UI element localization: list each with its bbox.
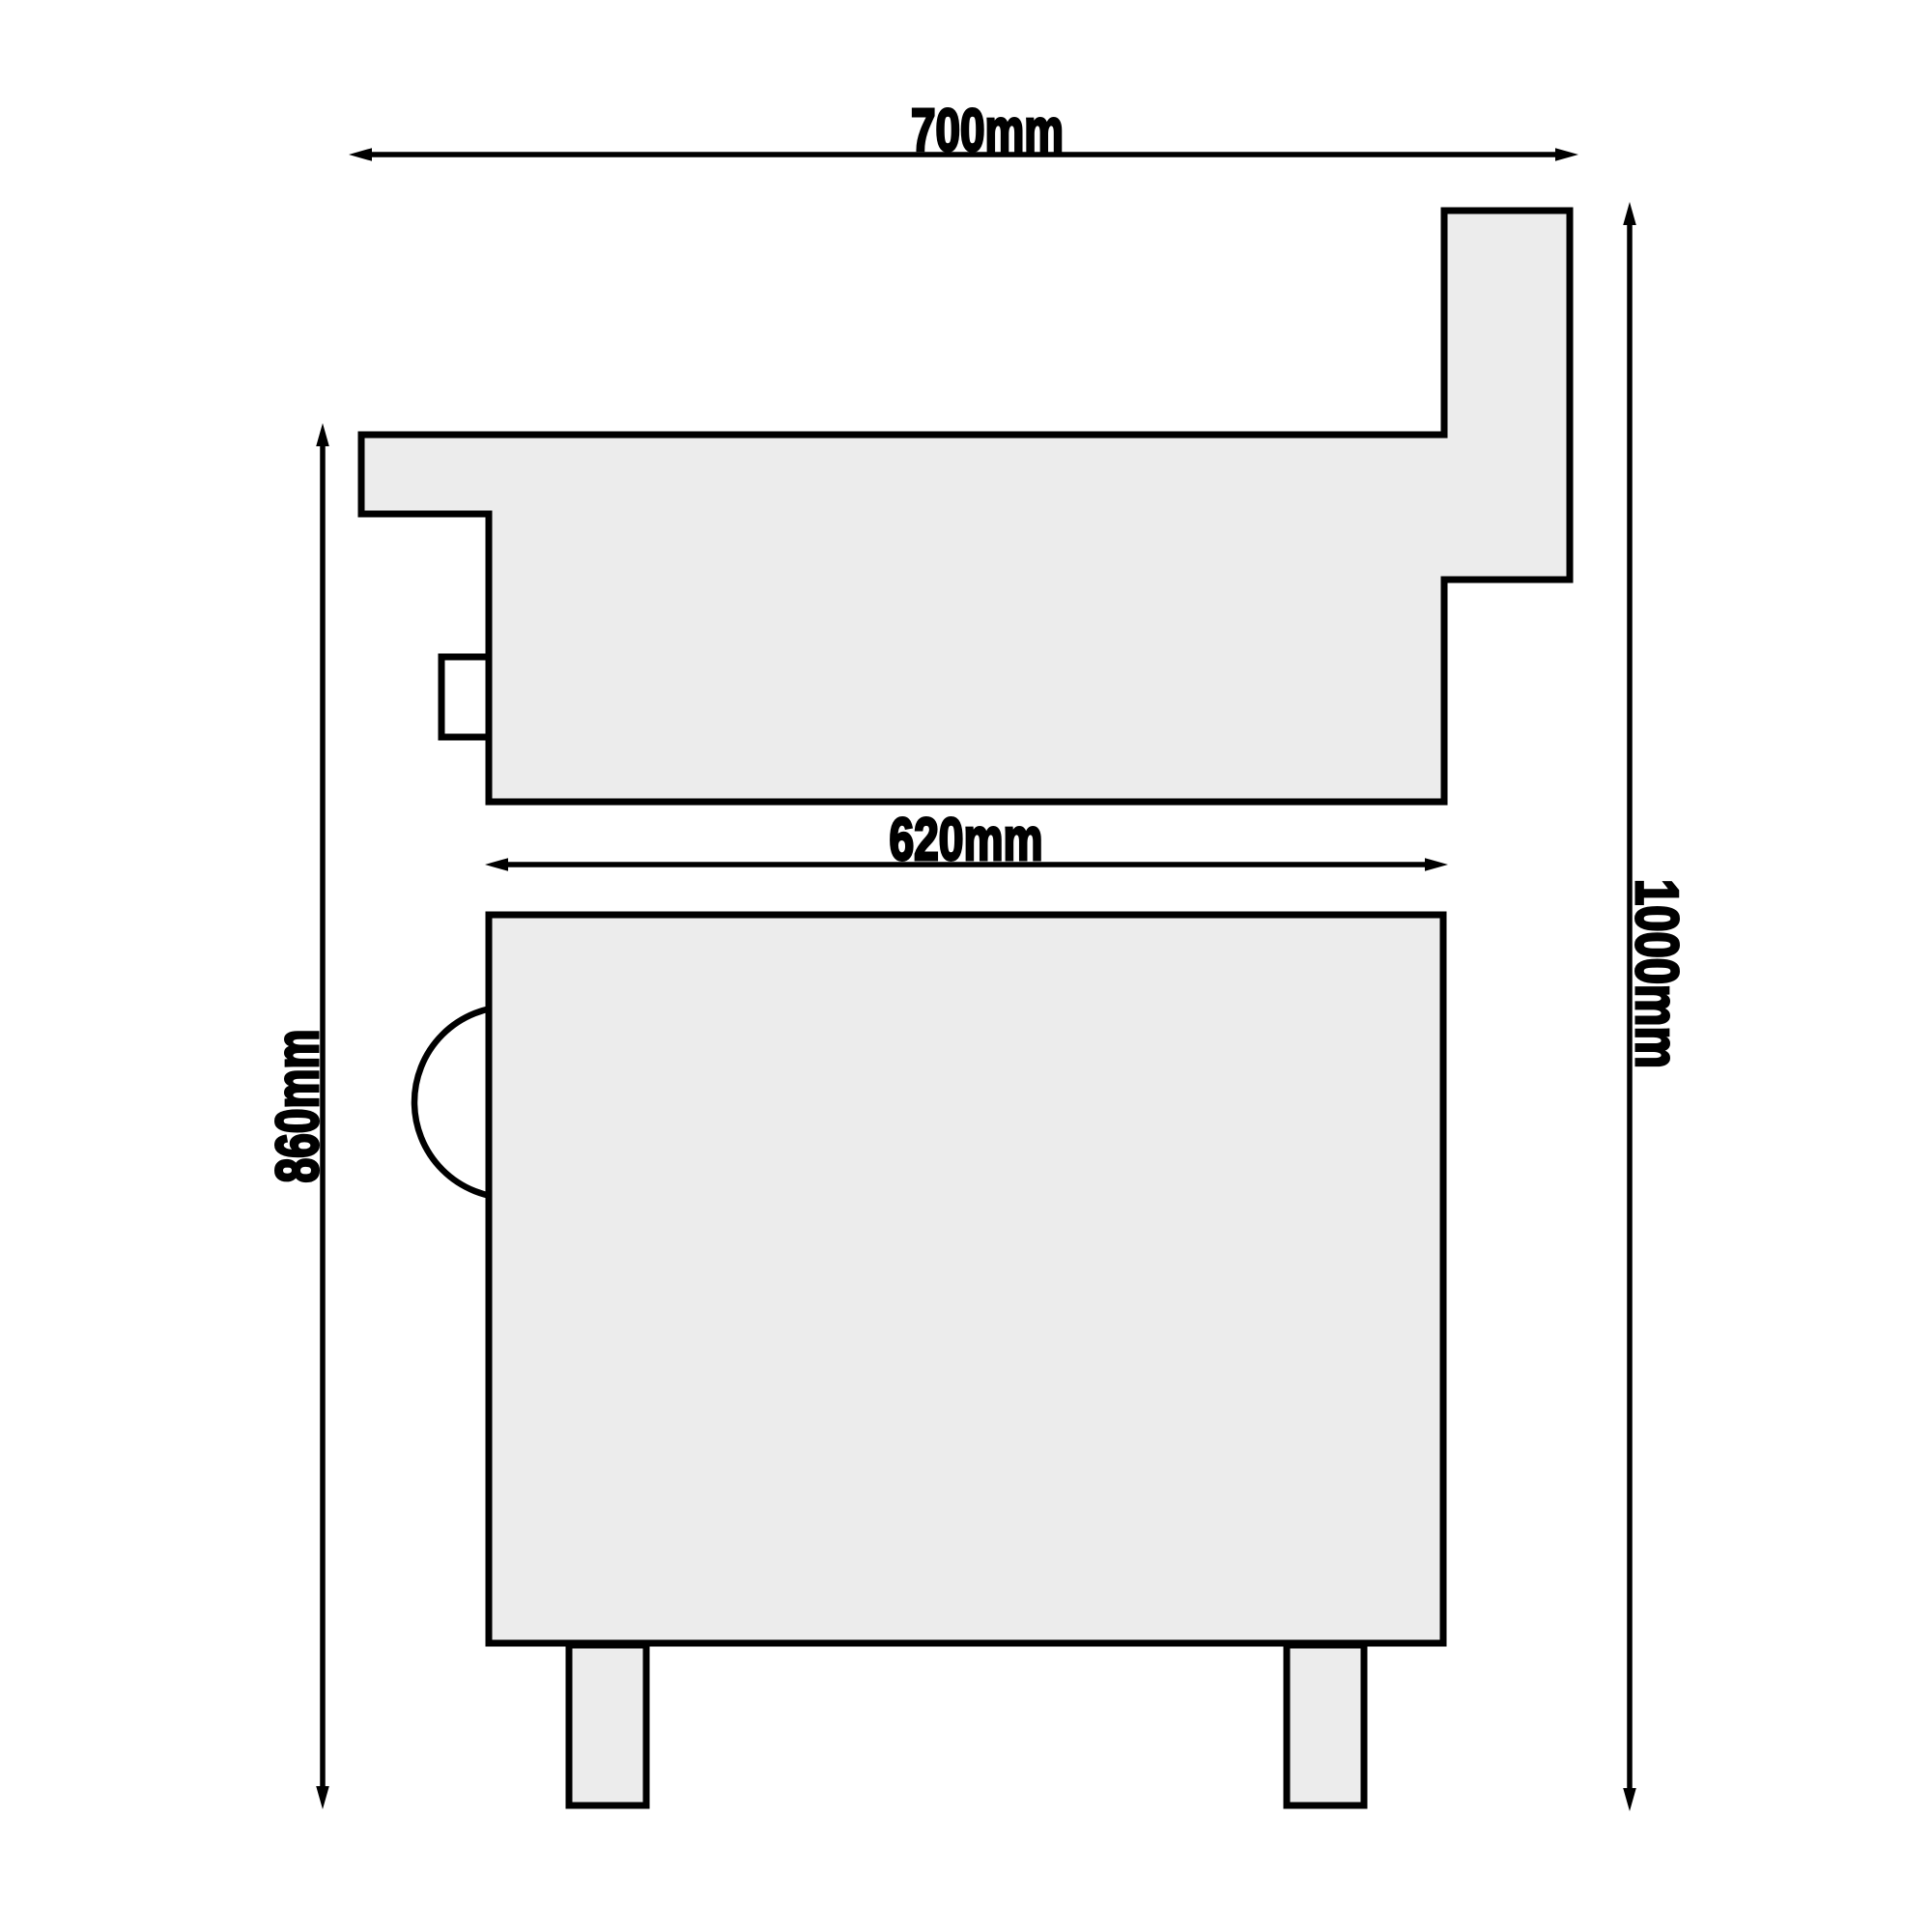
svg-text:620mm: 620mm [890,807,1043,873]
svg-text:1000mm: 1000mm [1623,879,1690,1068]
svg-text:860mm: 860mm [265,1030,331,1183]
svg-text:700mm: 700mm [911,98,1064,164]
